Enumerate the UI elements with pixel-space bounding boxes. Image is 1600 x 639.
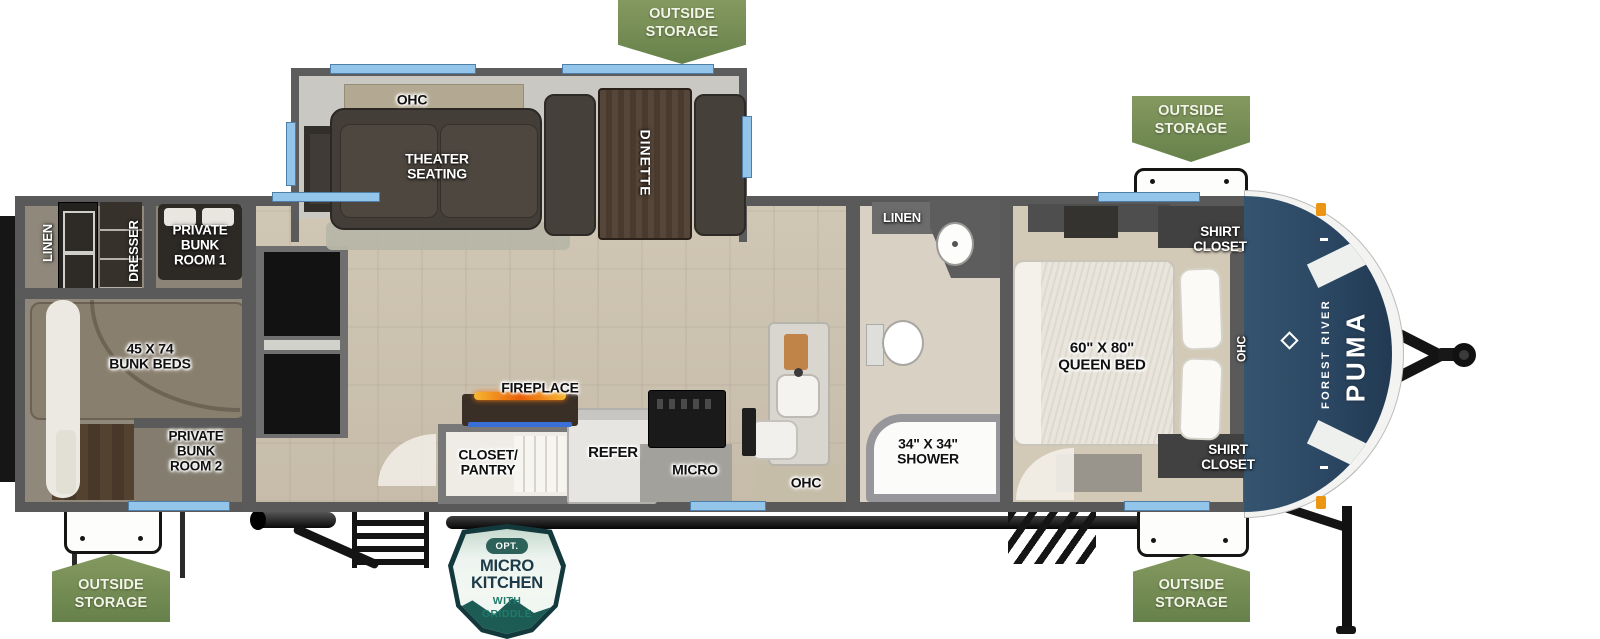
opt-pill: OPT. [486, 538, 528, 554]
window-strip [128, 501, 230, 511]
entry-steps [352, 533, 429, 539]
label-theater-seating: THEATER SEATING [405, 152, 469, 183]
tv-screen [264, 354, 340, 434]
brand-dash [1320, 466, 1328, 469]
drain-icon [952, 241, 958, 247]
micro-kitchen-badge: OPT. MICRO KITCHEN WITH GRIDDLE [448, 524, 566, 639]
storage-door-latch [80, 536, 85, 541]
brand-maker: FOREST RIVER [1320, 299, 1332, 409]
outside-storage-text: OUTSIDE STORAGE [1155, 103, 1228, 138]
entertainment-shelf [264, 340, 340, 350]
bunkhouse-right-wall [242, 196, 256, 512]
rv-floorplan: FOREST RIVER PUMA LINEN DRESSER PRIVATE … [0, 0, 1600, 639]
window-strip [1098, 192, 1200, 202]
label-linen-bathroom: LINEN [883, 211, 921, 225]
bathroom-left-wall [846, 196, 860, 512]
label-micro: MICRO [672, 462, 718, 477]
outside-storage-badge: OUTSIDE STORAGE [52, 554, 170, 622]
window-strip [330, 64, 476, 74]
dinette-bench [544, 94, 596, 236]
outside-storage-badge: OUTSIDE STORAGE [1132, 96, 1250, 162]
bedroom-entry-steps [1008, 512, 1096, 564]
label-shower: 34" X 34" SHOWER [897, 437, 959, 468]
micro-kitchen-title: MICRO KITCHEN [453, 558, 561, 593]
storage-door-latch [1224, 179, 1229, 184]
outside-storage-text: OUTSIDE STORAGE [75, 577, 148, 612]
outside-storage-badge: OUTSIDE STORAGE [618, 0, 746, 64]
bunk-room2-wall [134, 418, 244, 428]
outside-storage-badge: OUTSIDE STORAGE [1133, 554, 1250, 622]
nightstand [1064, 206, 1118, 238]
label-private-bunk-room-2: PRIVATE BUNK ROOM 2 [168, 430, 223, 475]
label-ohc-kitchen: OHC [791, 475, 822, 490]
tongue-jack-foot [1336, 626, 1356, 634]
cooktop-edge [742, 408, 756, 456]
storage-door-latch [1151, 538, 1156, 543]
label-queen-bed: 60" X 80" QUEEN BED [1058, 341, 1145, 374]
opt-text: OPT. [495, 541, 518, 552]
toilet-bowl [882, 320, 924, 366]
tv-screen [264, 252, 340, 336]
kitchen-sink [776, 374, 820, 418]
bunkhouse-cross-wall [15, 288, 256, 299]
label-linen-bunkhouse: LINEN [41, 224, 55, 262]
window-strip [562, 64, 714, 74]
slideout-wall-stub [291, 218, 299, 242]
faucet-icon [794, 368, 803, 377]
label-bunk-beds: 45 X 74 BUNK BEDS [109, 342, 190, 373]
storage-door-latch [1150, 179, 1155, 184]
label-dresser: DRESSER [127, 220, 141, 281]
fireplace-led-strip [468, 422, 572, 427]
entry-steps [352, 520, 429, 526]
outside-storage-text: OUTSIDE STORAGE [1155, 577, 1228, 612]
linen-cabinet [58, 202, 98, 298]
window-strip [272, 192, 380, 202]
label-ohc-bedroom: OHC [1235, 336, 1248, 362]
label-private-bunk-room-1: PRIVATE BUNK ROOM 1 [172, 224, 227, 269]
window-strip [286, 122, 296, 186]
bunk-room1-wall [144, 196, 156, 292]
entry-steps [352, 559, 429, 565]
label-closet-pantry: CLOSET/ PANTRY [458, 448, 517, 479]
entry-steps [352, 546, 429, 552]
label-shirt-closet-top: SHIRT CLOSET [1193, 225, 1247, 255]
awning-roller-cap [250, 510, 266, 530]
outside-storage-text: OUTSIDE STORAGE [646, 6, 719, 41]
label-fireplace: FIREPLACE [501, 380, 579, 395]
sink-basin [750, 420, 798, 460]
bed-pillow [56, 430, 76, 494]
storage-door-latch [138, 536, 143, 541]
window-strip [1124, 501, 1210, 511]
rear-stabilizer-leg [180, 512, 185, 578]
brand-model: PUMA [1342, 310, 1371, 403]
label-shirt-closet-bottom: SHIRT CLOSET [1201, 443, 1255, 473]
marker-light-icon [1316, 496, 1326, 509]
tongue-jack-leg [1342, 506, 1352, 632]
bed-pillow [1179, 357, 1224, 440]
rear-bumper [0, 216, 16, 482]
micro-kitchen-subtitle: WITH GRIDDLE [453, 595, 561, 620]
label-ohc-slideout: OHC [397, 92, 428, 107]
hitch-coupler-icon [1459, 350, 1469, 360]
bathroom-right-wall [1000, 196, 1013, 512]
microwave-range [648, 390, 726, 448]
micro-kitchen-badge-inner: OPT. MICRO KITCHEN WITH GRIDDLE [453, 529, 561, 634]
dinette-bench [694, 94, 746, 236]
label-dinette: DINETTE [637, 130, 652, 197]
cutting-board [784, 334, 808, 370]
marker-light-icon [1316, 203, 1326, 216]
bed-pillow [1179, 267, 1224, 350]
window-strip [742, 116, 752, 178]
label-refer: REFER [588, 445, 638, 462]
window-strip [690, 501, 766, 511]
storage-door-latch [1223, 538, 1228, 543]
brand-dash [1320, 238, 1328, 241]
